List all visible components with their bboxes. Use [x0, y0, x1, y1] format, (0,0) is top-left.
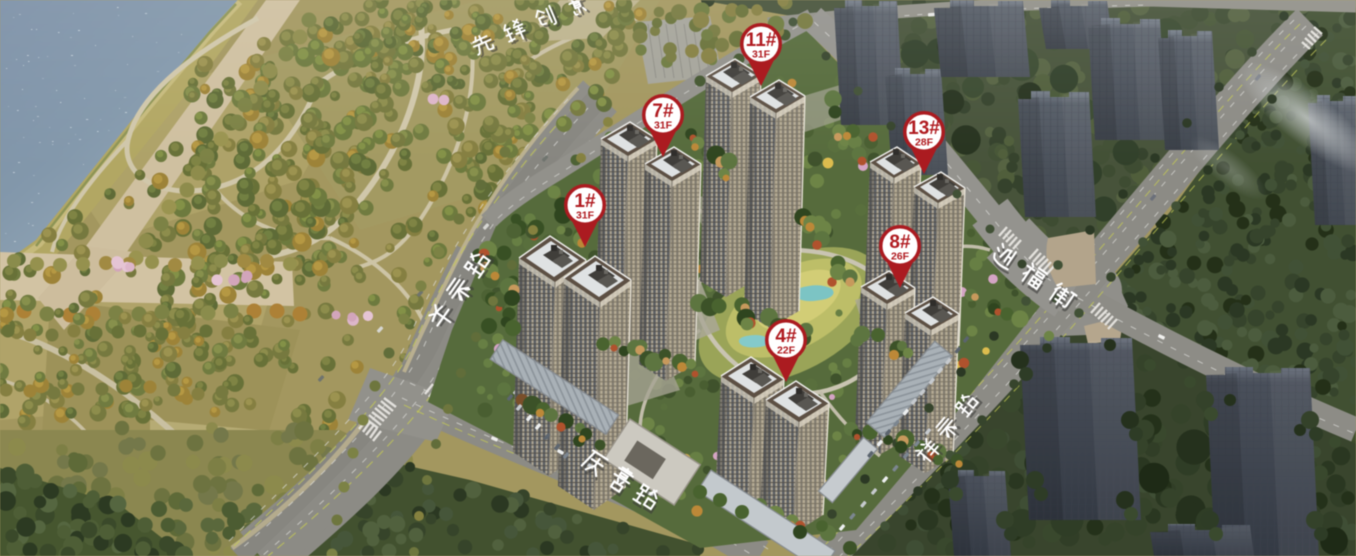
svg-text:31F: 31F — [576, 210, 595, 222]
svg-text:22F: 22F — [777, 345, 796, 357]
svg-text:31F: 31F — [654, 120, 673, 132]
svg-text:26F: 26F — [891, 251, 910, 263]
svg-text:28F: 28F — [915, 137, 934, 149]
svg-text:31F: 31F — [752, 49, 771, 61]
